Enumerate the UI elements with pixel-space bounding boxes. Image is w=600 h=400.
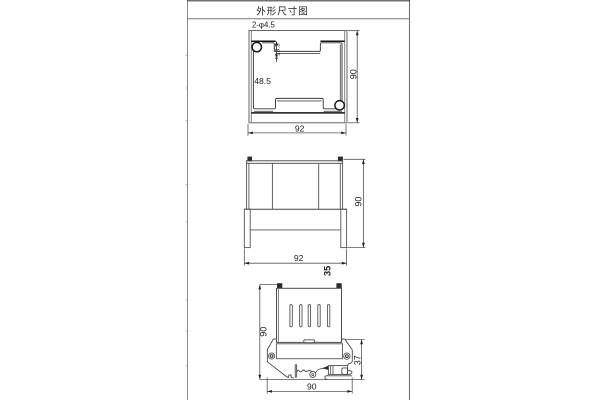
svg-text:48.5: 48.5 [254,76,271,86]
svg-text:90: 90 [259,327,269,337]
svg-text:90: 90 [353,197,363,207]
svg-text:35: 35 [323,266,333,276]
svg-text:90: 90 [307,382,317,392]
svg-text:外形尺寸图: 外形尺寸图 [256,5,309,17]
svg-text:92: 92 [295,123,305,133]
svg-text:92: 92 [294,253,304,263]
svg-text:90: 90 [348,69,358,79]
svg-text:37: 37 [353,355,363,365]
svg-text:2-φ4.5: 2-φ4.5 [252,20,275,29]
svg-text:13.3: 13.3 [275,43,282,56]
